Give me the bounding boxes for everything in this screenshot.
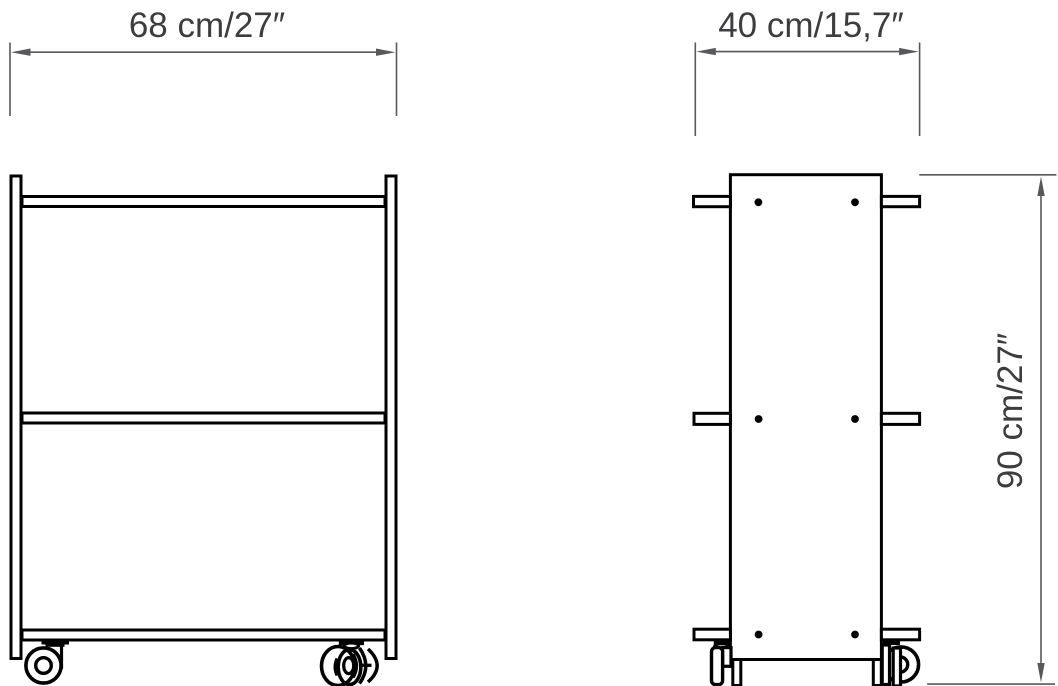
svg-text:90 cm/27″: 90 cm/27″ (991, 333, 1030, 489)
svg-text:68 cm/27″: 68 cm/27″ (129, 6, 285, 45)
svg-text:40 cm/15,7″: 40 cm/15,7″ (718, 6, 904, 45)
